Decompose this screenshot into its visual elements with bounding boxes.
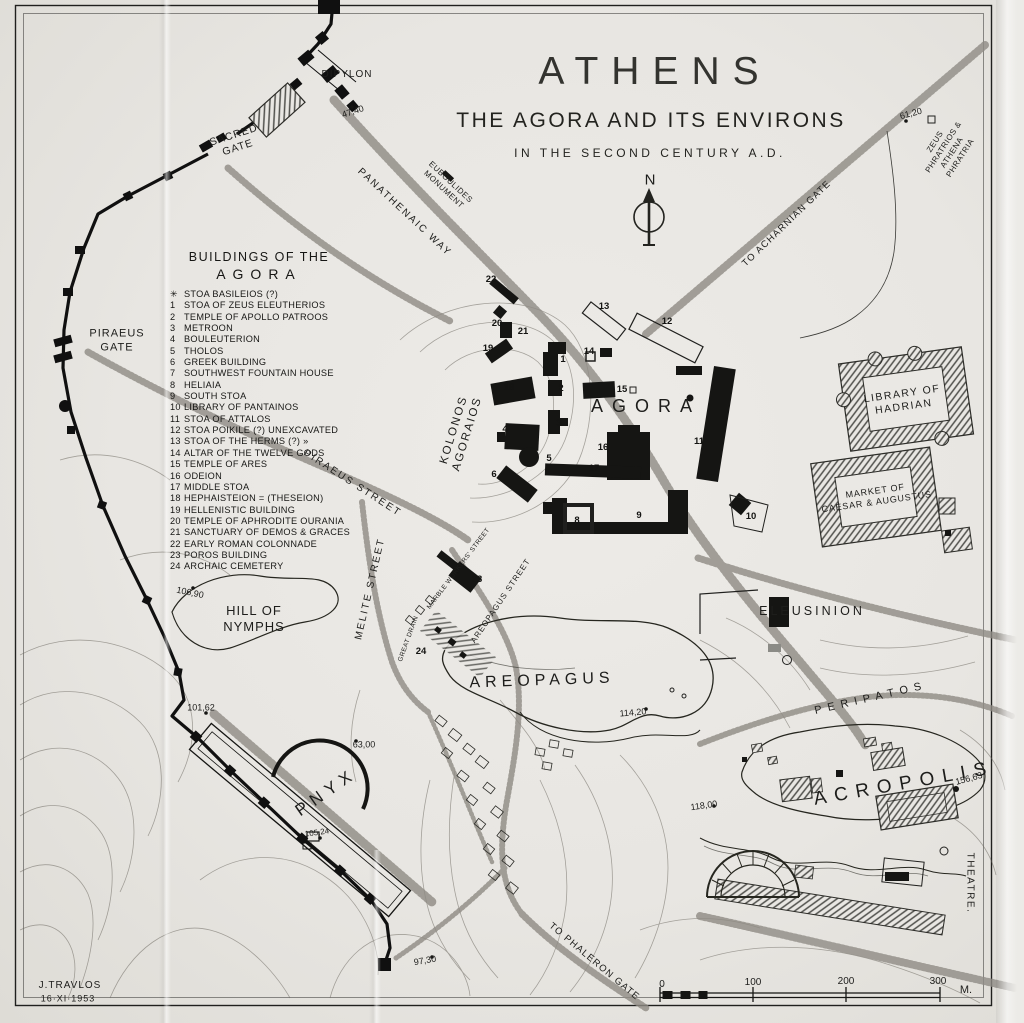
market-of-caesar-shape: [811, 447, 942, 547]
legend-item-✳: ✳STOA BASILEIOS (?): [170, 289, 375, 300]
map-era: IN THE SECOND CENTURY A.D.: [514, 146, 786, 160]
legend-buildings-of-the-agora: BUILDINGS OF THE AGORA ✳STOA BASILEIOS (…: [170, 250, 375, 573]
parthenon-shape: [876, 784, 958, 830]
legend-item-9: 9SOUTH STOA: [170, 391, 375, 402]
legend-item-24: 24ARCHAIC CEMETERY: [170, 561, 375, 572]
map-artwork: [0, 0, 1024, 1023]
legend-item-12: 12STOA POIKILE (?) UNEXCAVATED: [170, 425, 375, 436]
legend-item-7: 7SOUTHWEST FOUNTAIN HOUSE: [170, 368, 375, 379]
legend-item-18: 18HEPHAISTEION = (THESEION): [170, 493, 375, 504]
legend-item-8: 8HELIAIA: [170, 380, 375, 391]
compass-icon: [634, 188, 664, 245]
houses: [405, 595, 573, 894]
legend-item-4: 4BOULEUTERION: [170, 334, 375, 345]
legend-item-13: 13STOA OF THE HERMS (?) »: [170, 436, 375, 447]
map-subtitle: THE AGORA AND ITS ENVIRONS: [456, 109, 845, 133]
legend-item-23: 23POROS BUILDING: [170, 550, 375, 561]
legend-item-14: 14ALTAR OF THE TWELVE GODS: [170, 448, 375, 459]
library-of-hadrian-shape: [831, 340, 975, 459]
legend-item-11: 11STOA OF ATTALOS: [170, 414, 375, 425]
legend-item-20: 20TEMPLE OF APHRODITE OURANIA: [170, 516, 375, 527]
legend-item-21: 21SANCTUARY OF DEMOS & GRACES: [170, 527, 375, 538]
legend-item-list: ✳STOA BASILEIOS (?)1STOA OF ZEUS ELEUTHE…: [170, 289, 375, 573]
legend-item-19: 19HELLENISTIC BUILDING: [170, 505, 375, 516]
legend-item-16: 16ODEION: [170, 471, 375, 482]
map-page: ATHENS THE AGORA AND ITS ENVIRONS IN THE…: [0, 0, 1024, 1023]
legend-item-15: 15TEMPLE OF ARES: [170, 459, 375, 470]
legend-item-3: 3METROON: [170, 323, 375, 334]
legend-item-2: 2TEMPLE OF APOLLO PATROOS: [170, 312, 375, 323]
archaic-cemetery-shape: [420, 610, 496, 677]
scale-bar: [660, 986, 940, 1002]
legend-item-1: 1STOA OF ZEUS ELEUTHERIOS: [170, 300, 375, 311]
map-title: ATHENS: [538, 50, 771, 94]
legend-item-17: 17MIDDLE STOA: [170, 482, 375, 493]
legend-item-10: 10LIBRARY OF PANTAINOS: [170, 402, 375, 413]
legend-title-line2: AGORA: [170, 266, 348, 282]
legend-item-6: 6GREEK BUILDING: [170, 357, 375, 368]
propylaia-shape: [780, 775, 823, 802]
pnyx-structures: [189, 723, 410, 916]
legend-item-5: 5THOLOS: [170, 346, 375, 357]
legend-title-line1: BUILDINGS OF THE: [170, 250, 348, 264]
legend-item-22: 22EARLY ROMAN COLONNADE: [170, 539, 375, 550]
